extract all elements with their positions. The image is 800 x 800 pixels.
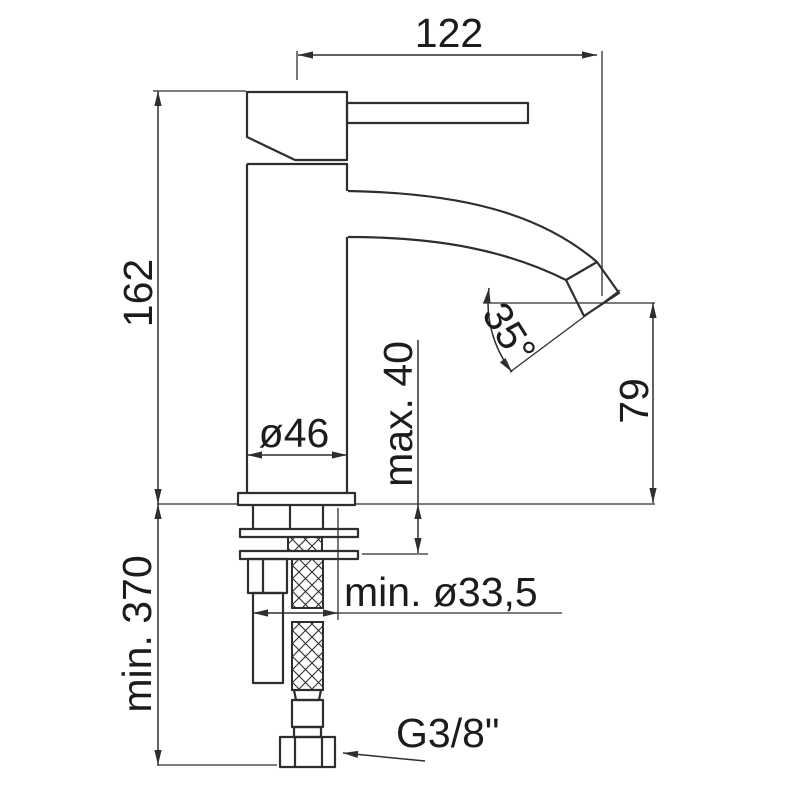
dim-spout-angle: 35° xyxy=(473,288,655,372)
supply-hose-lower xyxy=(292,622,323,690)
dim-label-max-deck-thickness: max. 40 xyxy=(375,341,421,487)
hose-nut xyxy=(280,737,335,767)
mounting-stud xyxy=(253,593,283,683)
faucet-spout-inner xyxy=(348,237,566,280)
faucet-spout-outer xyxy=(348,191,597,262)
technical-drawing-canvas: 122 162 min. 370 ø46 max. 40 35° 79 xyxy=(0,0,800,800)
dim-label-spout-reach: 122 xyxy=(415,10,483,56)
hose-ferrule xyxy=(294,690,321,700)
shank-nut xyxy=(253,505,323,529)
faucet-handle xyxy=(347,103,528,123)
supply-hose-upper xyxy=(292,559,323,608)
dim-label-total-height: 162 xyxy=(115,259,161,327)
washer-top xyxy=(240,529,358,537)
dim-thread-size: G3/8" xyxy=(343,710,499,761)
faucet-head xyxy=(247,92,347,160)
dim-label-thread-size: G3/8" xyxy=(396,710,499,756)
dim-label-spout-outlet-height: 79 xyxy=(611,378,657,424)
hose-sleeve xyxy=(292,700,323,727)
dim-max-deck-thickness: max. 40 xyxy=(362,340,428,554)
dim-spout-reach: 122 xyxy=(297,10,602,296)
dim-label-body-diameter: ø46 xyxy=(259,410,330,456)
mounting-flange xyxy=(238,493,355,505)
hose-collar xyxy=(294,727,321,737)
dim-label-spout-angle: 35° xyxy=(473,294,545,371)
washer-bottom xyxy=(240,551,358,559)
dim-body-diameter: ø46 xyxy=(247,410,347,456)
aerator xyxy=(566,262,619,316)
faucet-dimension-drawing: 122 162 min. 370 ø46 max. 40 35° 79 xyxy=(0,0,800,800)
hose-section-mid xyxy=(288,537,322,551)
dim-total-height: 162 xyxy=(115,91,246,504)
dim-label-min-hose-length: min. 370 xyxy=(114,555,160,712)
dim-label-min-hole-diameter: min. ø33,5 xyxy=(344,569,538,615)
clamp-fitting xyxy=(248,559,287,593)
dim-spout-outlet-height: 79 xyxy=(611,303,657,503)
